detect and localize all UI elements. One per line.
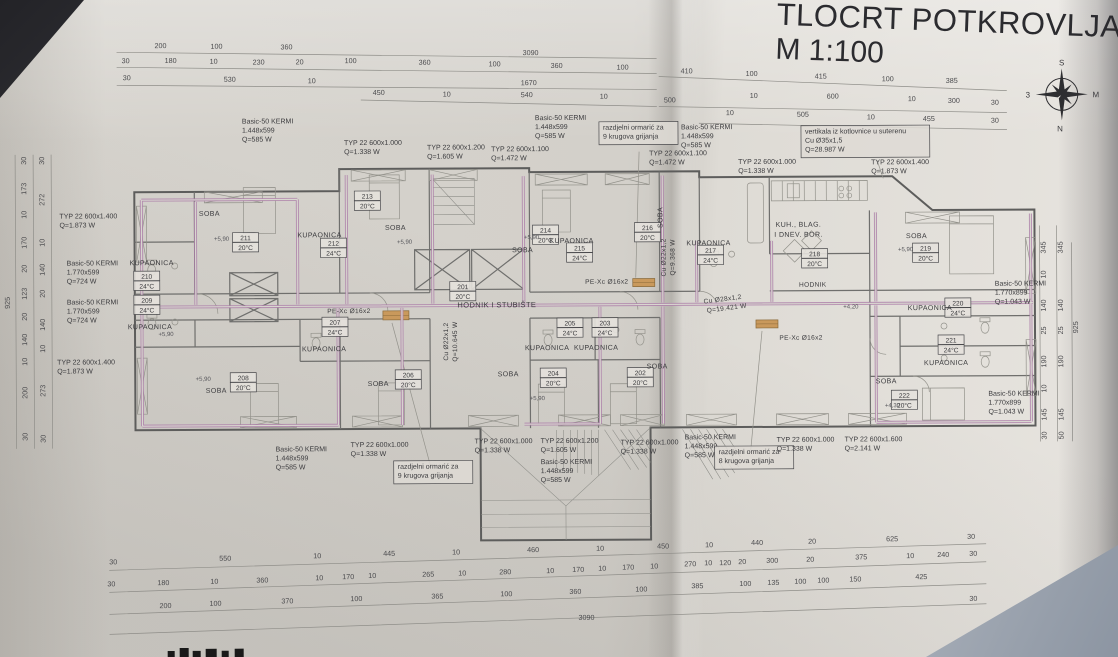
room-name-label: HODNIK I STUBIŠTE bbox=[457, 300, 536, 309]
room-tag-temp: 24°C bbox=[944, 346, 959, 354]
radiator-spec-label: TYP 22 600x1.400 bbox=[59, 213, 117, 220]
dim-label: 10 bbox=[38, 345, 47, 353]
photographed-floor-plan: 2001003603090301801023020100360100360100… bbox=[0, 0, 1118, 657]
dim-label: 173 bbox=[19, 183, 28, 195]
room-tag-temp: 24°C bbox=[703, 257, 718, 265]
level-mark: +4,20 bbox=[843, 304, 859, 310]
radiator-spec-label: TYP 22 600x1.600 bbox=[845, 436, 903, 443]
room-tag-temp: 20°C bbox=[918, 254, 933, 262]
dim-label: 100 bbox=[794, 577, 806, 586]
room-name-label: SOBA bbox=[206, 388, 227, 395]
room-tag-temp: 20°C bbox=[360, 202, 375, 210]
dim-label: 230 bbox=[253, 58, 265, 67]
room-tag-number: 204 bbox=[548, 371, 559, 378]
radiator-spec-label: Basic-50 KERMI bbox=[681, 124, 732, 131]
radiator-spec-label: Q=1.605 W bbox=[427, 153, 463, 160]
radiator-spec-label: Q=1.472 W bbox=[649, 159, 685, 166]
dim-label: 280 bbox=[499, 567, 511, 576]
dim-label: 170 bbox=[622, 563, 634, 572]
radiator-spec-label: Basic-50 KERMI bbox=[685, 434, 736, 441]
dim-label: 100 bbox=[739, 579, 751, 588]
dim-label: 10 bbox=[1039, 270, 1048, 278]
radiator-spec-label: Q=1.338 W bbox=[777, 446, 813, 453]
dim-label: 10 bbox=[908, 94, 916, 103]
dim-label: 460 bbox=[527, 545, 539, 554]
dim-label: 10 bbox=[368, 571, 376, 580]
room-tag-number: 206 bbox=[403, 372, 414, 379]
room-tag-number: 214 bbox=[540, 228, 551, 235]
dim-label: 30 bbox=[19, 157, 28, 165]
dim-label: 530 bbox=[224, 75, 236, 84]
dim-label: 140 bbox=[1039, 299, 1048, 311]
radiator-spec-label: razdjelni ormarić za bbox=[398, 464, 459, 471]
room-name-label: SOBA bbox=[368, 381, 389, 388]
dim-label: 10 bbox=[20, 358, 29, 366]
dim-label: 30 bbox=[39, 435, 48, 443]
room-tag-temp: 24°C bbox=[572, 254, 587, 262]
dim-label: 925 bbox=[3, 297, 12, 309]
dim-label: 20 bbox=[806, 555, 814, 564]
radiator-spec-label: Q=1.043 W bbox=[988, 409, 1024, 416]
radiator-spec-label: TYP 22 600x1.000 bbox=[351, 442, 409, 449]
dim-label: 100 bbox=[882, 74, 894, 83]
radiator-spec-label: Q=1.472 W bbox=[491, 155, 527, 162]
dim-label: 30 bbox=[21, 433, 30, 441]
room-tag-number: 213 bbox=[362, 194, 373, 201]
dim-label: 265 bbox=[422, 570, 434, 579]
pipe-annotation: PE-Xc Ø16x2 bbox=[327, 308, 370, 315]
radiator-spec-label: Basic-50 KERMI bbox=[541, 459, 592, 466]
dim-label: 170 bbox=[20, 237, 29, 249]
dim-label: 20 bbox=[38, 290, 47, 298]
dim-label: 300 bbox=[948, 96, 960, 105]
radiator-spec-label: TYP 22 600x1.000 bbox=[777, 437, 835, 444]
room-tag-temp: 24°C bbox=[140, 307, 155, 315]
pipe-annotation: HODNIK bbox=[799, 282, 827, 289]
dim-label: 625 bbox=[886, 534, 898, 543]
toilet-symbol bbox=[636, 334, 644, 345]
radiator-spec-label: 9 krugova grijanja bbox=[398, 473, 453, 480]
radiator-spec-label: Q=724 W bbox=[67, 278, 97, 285]
room-name-label: KUPAONICA bbox=[686, 240, 730, 247]
room-tag-number: 207 bbox=[329, 320, 340, 327]
sink-symbol bbox=[941, 323, 947, 329]
room-name-label: I DNEV. BOR. bbox=[774, 232, 823, 239]
level-mark: +5,90 bbox=[898, 247, 914, 253]
toilet-symbol bbox=[544, 335, 552, 346]
radiator-spec-label: 1.448x599 bbox=[276, 455, 309, 462]
dim-label: 100 bbox=[209, 599, 221, 608]
dim-label: 100 bbox=[500, 589, 512, 598]
radiator-spec-label: Q=724 W bbox=[67, 317, 97, 324]
radiator-spec-label: 1.448x599 bbox=[242, 127, 275, 134]
room-tag-number: 212 bbox=[328, 241, 339, 248]
dim-label: 30 bbox=[122, 56, 130, 65]
dim-label: 550 bbox=[219, 554, 231, 563]
dim-label: 100 bbox=[746, 69, 758, 78]
dim-label: 20 bbox=[20, 313, 29, 321]
room-name-label: KUPAONICA bbox=[525, 345, 569, 352]
room-tag-number: 210 bbox=[141, 274, 152, 281]
dim-label: 10 bbox=[1039, 384, 1048, 392]
dim-label: 455 bbox=[923, 114, 935, 123]
dim-label: 240 bbox=[937, 550, 949, 559]
room-tag-temp: 20°C bbox=[236, 384, 251, 392]
dim-label: 100 bbox=[345, 56, 357, 65]
dim-label: 505 bbox=[797, 110, 809, 119]
pipe-annotation: PE-Xc Ø16x2 bbox=[779, 335, 822, 342]
room-name-label: SOBA bbox=[657, 207, 664, 228]
dim-label: 365 bbox=[431, 592, 443, 601]
dim-label: 10 bbox=[704, 558, 712, 567]
radiator-spec-label: Q=1.873 W bbox=[57, 368, 93, 375]
compass-letter: 3 bbox=[1026, 91, 1031, 100]
room-tag-number: 217 bbox=[705, 248, 716, 255]
dim-label: 10 bbox=[210, 57, 218, 66]
dim-label: 360 bbox=[256, 576, 268, 585]
dim-label: 270 bbox=[684, 559, 696, 568]
radiator-spec-label: TYP 22 600x1.000 bbox=[344, 140, 402, 147]
radiator-spec-label: Q=1.338 W bbox=[344, 149, 380, 156]
room-tags: 20120°C20220°C20324°C20420°C20524°C20620… bbox=[133, 188, 971, 414]
dim-label: 360 bbox=[569, 587, 581, 596]
dim-label: 370 bbox=[281, 596, 293, 605]
radiator-spec-label: Cu Ø35x1,5 bbox=[805, 138, 842, 145]
room-tag-number: 218 bbox=[809, 251, 820, 258]
dim-label: 100 bbox=[210, 42, 222, 51]
dim-label: 123 bbox=[20, 288, 29, 300]
room-name-label: KUPAONICA bbox=[302, 346, 346, 353]
pipe-annotation: Cu Ø22x1,2 bbox=[661, 238, 668, 276]
room-tag-temp: 20°C bbox=[546, 379, 561, 387]
dim-label: 30 bbox=[123, 73, 131, 82]
dim-label: 450 bbox=[657, 541, 669, 550]
dim-label: 140 bbox=[38, 264, 47, 276]
radiator-spec-label: Q=1.338 W bbox=[621, 448, 657, 455]
dim-label: 20 bbox=[296, 57, 304, 66]
radiator-spec-label: TYP 22 600x1.100 bbox=[649, 150, 707, 157]
dim-label: 385 bbox=[946, 76, 958, 85]
room-tag-temp: 20°C bbox=[640, 234, 655, 242]
dim-label: 100 bbox=[617, 63, 629, 72]
room-name-label: SOBA bbox=[498, 371, 519, 378]
dim-label: 10 bbox=[726, 108, 734, 117]
level-mark: +5,90 bbox=[158, 332, 174, 338]
dim-label: 180 bbox=[157, 578, 169, 587]
dim-label: 170 bbox=[342, 572, 354, 581]
room-tag-temp: 24°C bbox=[598, 329, 613, 337]
room-tag-temp: 20°C bbox=[633, 379, 648, 387]
dim-label: 30 bbox=[1040, 431, 1049, 439]
dim-label: 135 bbox=[767, 578, 779, 587]
room-name-label: SOBA bbox=[906, 233, 927, 240]
dim-label: 200 bbox=[20, 387, 29, 399]
dim-label: 10 bbox=[313, 551, 321, 560]
radiator-spec-label: TYP 22 600x1.200 bbox=[541, 438, 599, 445]
radiator-spec-label: 1.448x599 bbox=[541, 468, 574, 475]
dim-label: 10 bbox=[308, 76, 316, 85]
dim-label: 540 bbox=[521, 90, 533, 99]
stairs-and-roof bbox=[432, 177, 741, 541]
room-tag-number: 203 bbox=[599, 320, 610, 327]
dim-label: 150 bbox=[849, 574, 861, 583]
level-mark: +5,90 bbox=[530, 396, 546, 402]
radiator-spec-label: 1.770x899 bbox=[995, 290, 1028, 297]
void-symbols bbox=[230, 249, 524, 322]
room-tag-number: 208 bbox=[238, 375, 249, 382]
dim-label: 10 bbox=[458, 568, 466, 577]
room-name-label: SOBA bbox=[199, 211, 220, 218]
room-tag-temp: 20°C bbox=[238, 244, 253, 252]
toilet-symbol bbox=[311, 333, 321, 337]
room-tag-number: 211 bbox=[240, 235, 251, 242]
room-name-label: KUH., BLAG. bbox=[776, 222, 822, 229]
radiator-spec-label: Q=585 W bbox=[242, 136, 272, 143]
toilet-symbol bbox=[980, 352, 990, 356]
dim-label: 10 bbox=[210, 577, 218, 586]
pipe-annotation: PE-Xc Ø16x2 bbox=[585, 279, 628, 286]
room-name-label: KUPAONICA bbox=[924, 360, 968, 367]
pipe-annotation: Q=9.368 W bbox=[670, 239, 677, 276]
dim-label: 450 bbox=[373, 88, 385, 97]
dim-label: 10 bbox=[598, 564, 606, 573]
dim-label: 100 bbox=[817, 576, 829, 585]
radiator-spec-label: Q=585 W bbox=[541, 477, 571, 484]
room-tag-number: 219 bbox=[920, 246, 931, 253]
radiator-spec-label: TYP 22 600x1.000 bbox=[475, 438, 533, 445]
room-tag-temp: 24°C bbox=[328, 329, 343, 337]
dim-label: 272 bbox=[37, 194, 46, 206]
room-name-label: KUPAONICA bbox=[129, 260, 173, 267]
room-tag-temp: 24°C bbox=[951, 309, 966, 317]
dim-label: 10 bbox=[650, 561, 658, 570]
dim-label: 273 bbox=[38, 385, 47, 397]
radiator-spec-label: Q=1.043 W bbox=[995, 299, 1031, 306]
radiator-spec-label: Basic-50 KERMI bbox=[995, 280, 1046, 287]
dim-label: 140 bbox=[20, 334, 29, 346]
dim-label: 100 bbox=[350, 594, 362, 603]
room-tag-temp: 24°C bbox=[326, 250, 341, 258]
room-name-label: SOBA bbox=[385, 225, 406, 232]
radiator-spec-label: Basic-50 KERMI bbox=[67, 299, 118, 306]
radiator-spec-label: Q=585 W bbox=[685, 452, 715, 459]
radiator-spec-label: 9 krugova grijanja bbox=[603, 133, 658, 140]
room-tag-number: 221 bbox=[946, 338, 957, 345]
radiator-spec-label: Basic-50 KERMI bbox=[276, 446, 327, 453]
dim-label: 25 bbox=[1039, 326, 1048, 334]
dim-label: 440 bbox=[751, 538, 763, 547]
dim-label: 10 bbox=[546, 566, 554, 575]
dim-label: 415 bbox=[815, 72, 827, 81]
fixtures bbox=[136, 167, 1036, 429]
dim-label: 600 bbox=[827, 92, 839, 101]
pipe-annotation: Q=10.645 W bbox=[452, 321, 459, 362]
dim-label: 10 bbox=[705, 540, 713, 549]
radiator-spec-label: TYP 22 600x1.400 bbox=[57, 359, 115, 366]
radiator-spec-label: 1.770x899 bbox=[988, 400, 1021, 407]
radiator-spec-label: Q=1.338 W bbox=[475, 447, 511, 454]
dim-label: 30 bbox=[969, 594, 977, 603]
radiator-spec-label: vertikala iz kotlovnice u suterenu bbox=[805, 128, 906, 136]
radiator-spec-label: TYP 22 600x1.000 bbox=[738, 159, 796, 166]
room-name-label: KUPAONICA bbox=[297, 232, 341, 239]
room-name-label: KUPAONICA bbox=[128, 324, 172, 331]
radiator-spec-label: Q=1.338 W bbox=[738, 168, 774, 175]
level-mark: +4,30 bbox=[885, 403, 901, 409]
radiator-spec-label: razdjelni ormarić za bbox=[603, 124, 664, 131]
dim-label: 375 bbox=[855, 552, 867, 561]
dim-label: 180 bbox=[165, 56, 177, 65]
dim-label: 20 bbox=[738, 557, 746, 566]
radiator-spec-label: Q=2.141 W bbox=[845, 445, 881, 452]
radiator-spec-label: Basic-50 KERMI bbox=[535, 115, 586, 122]
radiator-spec-label: 1.448x599 bbox=[681, 133, 714, 140]
dim-label: 190 bbox=[1039, 355, 1048, 367]
dim-label: 20 bbox=[20, 265, 29, 273]
dim-label: 10 bbox=[19, 211, 28, 219]
cut-off-text-fragment bbox=[168, 648, 244, 657]
room-tag-temp: 24°C bbox=[139, 283, 154, 291]
dim-label: 100 bbox=[635, 585, 647, 594]
room-tag-temp: 20°C bbox=[807, 260, 822, 268]
room-name-label: KUPAONICA bbox=[908, 305, 952, 312]
dim-label: 30 bbox=[991, 98, 999, 107]
room-tag-number: 202 bbox=[635, 370, 646, 377]
dim-label: 140 bbox=[38, 319, 47, 331]
room-tag-temp: 24°C bbox=[563, 329, 578, 337]
dim-label: 10 bbox=[315, 573, 323, 582]
radiator-spec-label: Basic-50 KERMI bbox=[988, 390, 1039, 397]
dim-label: 360 bbox=[419, 58, 431, 67]
room-tag-temp: 20°C bbox=[401, 381, 416, 389]
dim-label: 10 bbox=[38, 239, 47, 247]
radiator-spec-label: 1.770x599 bbox=[67, 269, 100, 276]
radiator-spec-label: razdjelni ormarić za bbox=[719, 449, 780, 456]
dim-label: 170 bbox=[572, 565, 584, 574]
room-name-label: SOBA bbox=[647, 363, 668, 370]
dim-label: 10 bbox=[443, 90, 451, 99]
radiator-spec-label: Basic-50 KERMI bbox=[242, 118, 293, 125]
dim-label: 100 bbox=[489, 59, 501, 68]
dim-label: 3090 bbox=[578, 613, 594, 622]
radiator-spec-label: TYP 22 600x1.000 bbox=[621, 439, 679, 446]
toilet-symbol bbox=[543, 330, 553, 334]
dim-label: 200 bbox=[159, 601, 171, 610]
room-tag-number: 209 bbox=[141, 298, 152, 305]
dim-label: 30 bbox=[969, 549, 977, 558]
dim-label: 10 bbox=[452, 548, 460, 557]
room-tag-number: 205 bbox=[564, 321, 575, 328]
room-tag-number: 220 bbox=[952, 300, 963, 307]
dim-label: 10 bbox=[750, 91, 758, 100]
dim-label: 425 bbox=[915, 572, 927, 581]
radiator-spec-label: TYP 22 600x1.400 bbox=[871, 159, 929, 166]
room-tag-number: 222 bbox=[899, 393, 910, 400]
dim-label: 410 bbox=[681, 66, 693, 75]
toilet-symbol bbox=[981, 356, 989, 367]
room-tag-number: 216 bbox=[642, 225, 653, 232]
dim-label: 30 bbox=[109, 557, 117, 566]
level-mark: +5,90 bbox=[214, 237, 230, 243]
room-name-label: SOBA bbox=[512, 247, 533, 254]
radiator-symbols bbox=[136, 167, 1036, 429]
radiator-spec-label: Q=585 W bbox=[276, 464, 306, 471]
dim-label: 1670 bbox=[521, 78, 537, 87]
level-mark: +5,90 bbox=[524, 235, 540, 241]
radiator-spec-label: 1.448x599 bbox=[685, 443, 718, 450]
room-tag-number: 215 bbox=[574, 245, 585, 252]
dim-label: 10 bbox=[596, 544, 604, 553]
level-mark: +5,90 bbox=[397, 240, 413, 246]
dim-label: 10 bbox=[867, 112, 875, 121]
radiator-spec-label: TYP 22 600x1.200 bbox=[427, 144, 485, 151]
radiator-spec-label: Q=1.873 W bbox=[59, 222, 95, 229]
dim-label: 30 bbox=[967, 532, 975, 541]
radiator-spec-label: Q=28.987 W bbox=[805, 147, 845, 154]
dim-label: 30 bbox=[37, 157, 46, 165]
radiator-spec-label: 1.448x599 bbox=[535, 124, 568, 131]
radiator-spec-label: Q=585 W bbox=[681, 142, 711, 149]
dim-label: 145 bbox=[1039, 408, 1048, 420]
floor-plan-drawing: 2001003603090301801023020100360100360100… bbox=[0, 0, 1118, 657]
radiator-spec-label: Q=585 W bbox=[535, 133, 565, 140]
toilet-symbol bbox=[981, 322, 989, 333]
toilet-symbol bbox=[980, 318, 990, 322]
dim-label: 500 bbox=[664, 95, 676, 104]
drawing-title: TLOCRT POTKROVLJA M 1:100 bbox=[775, 0, 1118, 79]
dim-label: 120 bbox=[719, 558, 731, 567]
room-tag-number: 201 bbox=[457, 284, 468, 291]
dim-label: 30 bbox=[991, 116, 999, 125]
dim-label: 445 bbox=[383, 549, 395, 558]
room-name-label: KUPAONICA bbox=[574, 345, 618, 352]
dim-label: 385 bbox=[691, 581, 703, 590]
dim-label: 10 bbox=[906, 551, 914, 560]
radiator-spec-label: 8 krugova grijanja bbox=[719, 458, 774, 465]
dim-label: 360 bbox=[280, 42, 292, 51]
dim-label: 200 bbox=[154, 41, 166, 50]
radiator-spec-label: Basic-50 KERMI bbox=[67, 260, 118, 267]
toilet-symbol bbox=[635, 330, 645, 334]
sink-symbol bbox=[729, 251, 735, 257]
radiator-spec-label: 1.770x599 bbox=[67, 308, 100, 315]
dim-label: 20 bbox=[808, 537, 816, 546]
dim-label: 30 bbox=[107, 579, 115, 588]
room-name-label: SOBA bbox=[876, 378, 897, 385]
radiator-spec-label: Q=1.605 W bbox=[541, 447, 577, 454]
dim-label: 3090 bbox=[523, 48, 539, 57]
dim-label: 10 bbox=[600, 92, 608, 101]
radiator-spec-label: TYP 22 600x1.100 bbox=[491, 146, 549, 153]
level-mark: +5,90 bbox=[196, 377, 212, 383]
radiator-spec-label: Q=1.873 W bbox=[871, 168, 907, 175]
dim-label: 300 bbox=[766, 556, 778, 565]
radiator-spec-label: Q=1.338 W bbox=[351, 451, 387, 458]
room-name-label: KUPAONICA bbox=[549, 238, 593, 245]
dim-label: 345 bbox=[1039, 241, 1048, 253]
dim-label: 360 bbox=[551, 61, 563, 70]
pipe-annotation: Cu Ø22x1,2 bbox=[443, 322, 450, 360]
